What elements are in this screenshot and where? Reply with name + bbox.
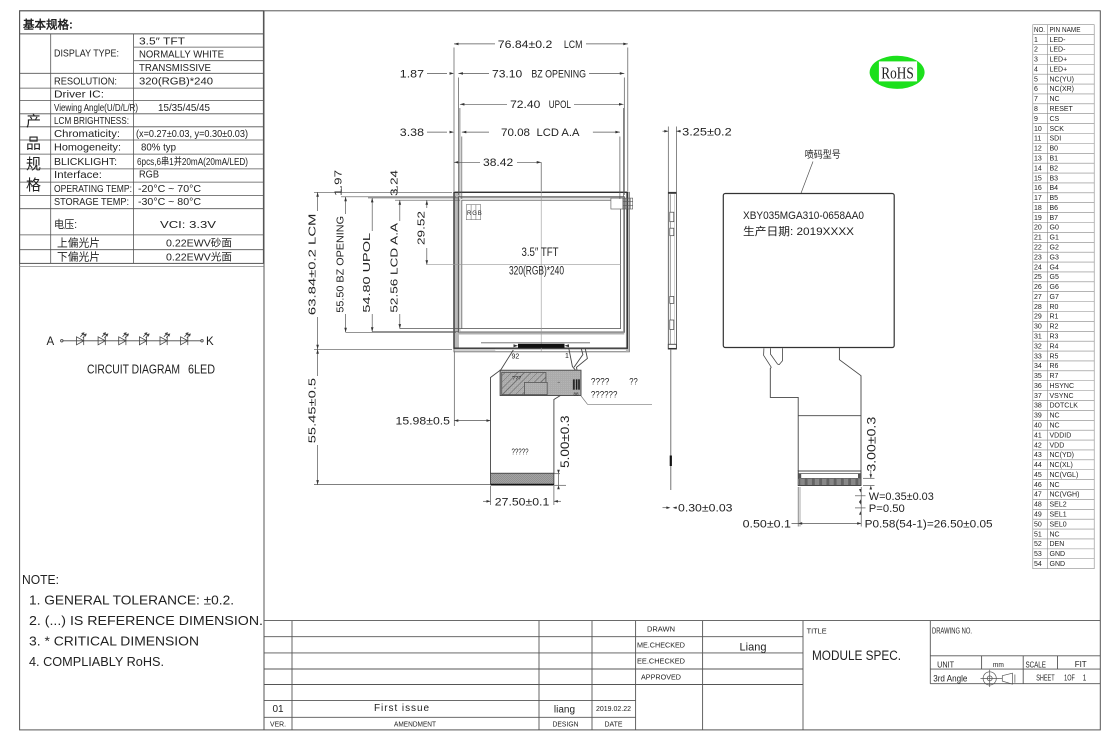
svg-text:BLICKLIGHT:: BLICKLIGHT: <box>54 157 117 168</box>
svg-text:喷码型号: 喷码型号 <box>805 148 841 161</box>
svg-text:???: ??? <box>512 376 521 382</box>
svg-text:RoHS: RoHS <box>881 64 914 83</box>
svg-text:G0: G0 <box>1050 225 1059 232</box>
svg-text:mm: mm <box>993 660 1004 669</box>
svg-text:30: 30 <box>1034 324 1042 331</box>
svg-text:29.52: 29.52 <box>416 211 428 245</box>
svg-text:AMENDMENT: AMENDMENT <box>394 720 436 729</box>
svg-text:RGB: RGB <box>467 211 483 217</box>
svg-text:55.45±0.5: 55.45±0.5 <box>306 378 318 444</box>
svg-text:电压:: 电压: <box>54 218 77 231</box>
svg-text:(x=0.27±0.03, y=0.30±0.03): (x=0.27±0.03, y=0.30±0.03) <box>136 129 248 140</box>
svg-text:NC: NC <box>1050 531 1060 538</box>
svg-text:35: 35 <box>1034 373 1042 380</box>
svg-text:73.10: 73.10 <box>492 68 522 80</box>
svg-text:G4: G4 <box>1050 264 1059 271</box>
svg-text:?????: ????? <box>512 448 529 457</box>
svg-text:FIT: FIT <box>1075 659 1087 669</box>
svg-text:DOTCLK: DOTCLK <box>1050 403 1079 410</box>
svg-text:1OF: 1OF <box>1064 673 1075 683</box>
svg-text:3: 3 <box>1034 57 1038 64</box>
svg-text:54.80 UPOL: 54.80 UPOL <box>361 233 373 313</box>
svg-text:SDI: SDI <box>1050 136 1062 143</box>
svg-text:2. (...) IS REFERENCE DIMENSIO: 2. (...) IS REFERENCE DIMENSION. <box>29 613 263 628</box>
svg-text:TRANSMISSIVE: TRANSMISSIVE <box>139 63 211 74</box>
svg-text:NC(YD): NC(YD) <box>1050 452 1075 459</box>
svg-text:ME.CHECKED: ME.CHECKED <box>637 641 686 650</box>
svg-text:8: 8 <box>1034 106 1038 113</box>
svg-text:NC: NC <box>1050 413 1060 420</box>
svg-text:G7: G7 <box>1050 294 1059 301</box>
svg-text:70.08: 70.08 <box>501 127 530 139</box>
svg-text:17: 17 <box>1034 195 1042 202</box>
svg-text:5.00±0.3: 5.00±0.3 <box>560 415 572 467</box>
svg-text:12: 12 <box>1034 146 1042 153</box>
svg-text:4: 4 <box>1034 66 1038 73</box>
svg-text:NC: NC <box>1050 423 1060 430</box>
svg-text:上偏光片: 上偏光片 <box>57 236 100 250</box>
svg-text:P0.58(54-1)=26.50±0.05: P0.58(54-1)=26.50±0.05 <box>865 518 993 530</box>
svg-text:GND: GND <box>1050 561 1066 568</box>
svg-text:42: 42 <box>1034 442 1042 449</box>
svg-text:MODULE SPEC.: MODULE SPEC. <box>812 648 901 663</box>
svg-text:33: 33 <box>1034 353 1042 360</box>
svg-text:54: 54 <box>1034 561 1042 568</box>
svg-text:52.56 LCD A.A: 52.56 LCD A.A <box>389 223 401 313</box>
svg-text:NC(XR): NC(XR) <box>1050 86 1075 93</box>
svg-text:49: 49 <box>1034 512 1042 519</box>
svg-text:LED-: LED- <box>1050 47 1067 54</box>
svg-text:G5: G5 <box>1050 274 1059 281</box>
svg-text:47: 47 <box>1034 492 1042 499</box>
svg-text:SEL0: SEL0 <box>1050 521 1067 528</box>
svg-text:3.38: 3.38 <box>400 127 424 139</box>
svg-text:CS: CS <box>1050 116 1060 123</box>
svg-text:NC(YU): NC(YU) <box>1050 76 1075 83</box>
svg-text:Interface:: Interface: <box>54 170 102 181</box>
svg-text:B3: B3 <box>1050 175 1059 182</box>
svg-text:27.50±0.1: 27.50±0.1 <box>495 496 550 508</box>
svg-text:1: 1 <box>565 353 569 360</box>
svg-text:XBY035MGA310-0658AA0: XBY035MGA310-0658AA0 <box>743 210 864 222</box>
svg-text:4. COMPLIABLY RoHS.: 4. COMPLIABLY RoHS. <box>29 654 164 669</box>
svg-text:SCALE: SCALE <box>1025 660 1046 670</box>
svg-text:-20°C ~ 70°C: -20°C ~ 70°C <box>138 184 202 195</box>
svg-text:2019.02.22: 2019.02.22 <box>596 704 631 713</box>
svg-text:DISPLAY TYPE:: DISPLAY TYPE: <box>54 49 119 60</box>
svg-text:生产日期: 2019XXXX: 生产日期: 2019XXXX <box>743 224 855 238</box>
svg-text:????: ???? <box>591 377 610 388</box>
svg-text:R4: R4 <box>1050 343 1059 350</box>
svg-text:NC: NC <box>1050 482 1060 489</box>
svg-text:VCI: 3.3V: VCI: 3.3V <box>160 220 216 231</box>
svg-text:NO.: NO. <box>1034 27 1045 34</box>
svg-text:B6: B6 <box>1050 205 1059 212</box>
svg-text:34: 34 <box>1034 363 1042 370</box>
svg-text:LCD A.A: LCD A.A <box>537 127 581 139</box>
svg-text:48: 48 <box>1034 502 1042 509</box>
svg-text:16: 16 <box>1034 185 1042 192</box>
svg-text:CIRCUIT DIAGRAM: CIRCUIT DIAGRAM <box>87 363 180 377</box>
svg-text:15/35/45/45: 15/35/45/45 <box>158 103 210 114</box>
svg-text:NORMALLY WHITE: NORMALLY WHITE <box>139 50 224 61</box>
svg-text:EE.CHECKED: EE.CHECKED <box>637 657 686 666</box>
svg-text:RESET: RESET <box>1050 106 1074 113</box>
svg-text:31: 31 <box>1034 333 1042 340</box>
svg-text:liang: liang <box>554 705 575 716</box>
svg-text:SEL2: SEL2 <box>1050 502 1067 509</box>
svg-text:品: 品 <box>26 136 41 153</box>
svg-text:76.84±0.2: 76.84±0.2 <box>498 39 553 51</box>
svg-text:DEN: DEN <box>1050 541 1065 548</box>
svg-text:51: 51 <box>1034 531 1042 538</box>
svg-text:0.50±0.1: 0.50±0.1 <box>743 518 791 530</box>
svg-text:??????: ?????? <box>591 390 618 401</box>
svg-text:39: 39 <box>1034 413 1042 420</box>
svg-text:B1: B1 <box>1050 155 1059 162</box>
svg-text:RESOLUTION:: RESOLUTION: <box>54 77 117 88</box>
svg-text:R6: R6 <box>1050 363 1059 370</box>
svg-text:G6: G6 <box>1050 284 1059 291</box>
svg-text:45: 45 <box>1034 472 1042 479</box>
svg-text:VDDID: VDDID <box>1050 432 1072 439</box>
svg-text:14: 14 <box>1034 165 1042 172</box>
svg-text:B5: B5 <box>1050 195 1059 202</box>
svg-text:GND: GND <box>1050 551 1066 558</box>
svg-text:52: 52 <box>1034 541 1042 548</box>
svg-text:Driver IC:: Driver IC: <box>54 90 104 101</box>
svg-text:01: 01 <box>272 704 284 715</box>
svg-text:38: 38 <box>1034 403 1042 410</box>
svg-text:3. * CRITICAL DIMENSION: 3. * CRITICAL DIMENSION <box>29 634 199 649</box>
svg-text:VER.: VER. <box>270 720 286 729</box>
svg-text:NC(VGH): NC(VGH) <box>1050 492 1080 499</box>
svg-text:LED+: LED+ <box>1050 66 1068 73</box>
svg-text:3.25±0.2: 3.25±0.2 <box>682 127 732 139</box>
svg-text:产: 产 <box>26 113 41 130</box>
svg-text:LCM BRIGHTNESS:: LCM BRIGHTNESS: <box>54 116 129 127</box>
svg-text:P=0.50: P=0.50 <box>869 503 905 515</box>
svg-text:1: 1 <box>1034 37 1038 44</box>
svg-text:NC: NC <box>1050 96 1060 103</box>
svg-text:80% typ: 80% typ <box>141 143 176 154</box>
svg-text:R0: R0 <box>1050 304 1059 311</box>
svg-text:BZ OPENING: BZ OPENING <box>531 68 586 80</box>
svg-text:下偏光片: 下偏光片 <box>57 250 100 264</box>
svg-text:STORAGE TEMP:: STORAGE TEMP: <box>54 197 129 208</box>
svg-text:10: 10 <box>1034 126 1042 133</box>
svg-text:PIN NAME: PIN NAME <box>1050 27 1081 34</box>
svg-text:0.22EWV光面: 0.22EWV光面 <box>166 251 232 264</box>
svg-text:40: 40 <box>1034 423 1042 430</box>
svg-text:1: 1 <box>1083 673 1087 683</box>
svg-text:27: 27 <box>1034 294 1042 301</box>
svg-text:88: 88 <box>574 392 580 397</box>
svg-text:25: 25 <box>1034 274 1042 281</box>
svg-text:7: 7 <box>1034 96 1038 103</box>
svg-text:Liang: Liang <box>740 642 767 654</box>
svg-text:2: 2 <box>1034 47 1038 54</box>
svg-text:43: 43 <box>1034 452 1042 459</box>
svg-text:R3: R3 <box>1050 333 1059 340</box>
svg-text:DATE: DATE <box>605 720 623 729</box>
svg-text:SEL1: SEL1 <box>1050 512 1067 519</box>
svg-text:OPERATING TEMP:: OPERATING TEMP: <box>54 184 132 195</box>
svg-text:G1: G1 <box>1050 235 1059 242</box>
svg-text:G2: G2 <box>1050 244 1059 251</box>
svg-text:1. GENERAL TOLERANCE: ±0.2.: 1. GENERAL TOLERANCE: ±0.2. <box>29 593 234 608</box>
svg-text:UPOL: UPOL <box>549 99 571 111</box>
svg-text:APPROVED: APPROVED <box>641 673 682 682</box>
svg-text:NOTE:: NOTE: <box>22 572 59 587</box>
svg-text:-30°C ~ 80°C: -30°C ~ 80°C <box>138 197 202 208</box>
svg-text:37: 37 <box>1034 393 1042 400</box>
svg-text:LED+: LED+ <box>1050 57 1068 64</box>
svg-text:Viewing Angle(U/D/L/R): Viewing Angle(U/D/L/R) <box>54 103 138 114</box>
svg-text:92: 92 <box>512 354 520 361</box>
svg-text:NC(XL): NC(XL) <box>1050 462 1073 469</box>
svg-text:UNIT: UNIT <box>937 660 954 670</box>
svg-text:13: 13 <box>1034 155 1042 162</box>
svg-text:320(RGB)*240: 320(RGB)*240 <box>509 266 564 278</box>
svg-text:6LED: 6LED <box>188 363 215 377</box>
svg-text:NC(VGL): NC(VGL) <box>1050 472 1079 479</box>
svg-text:44: 44 <box>1034 462 1042 469</box>
svg-text:41: 41 <box>1034 432 1042 439</box>
svg-text:TITLE: TITLE <box>807 627 827 636</box>
svg-text:K: K <box>206 336 214 348</box>
svg-text:G3: G3 <box>1050 254 1059 261</box>
svg-text:DRAWN: DRAWN <box>647 625 675 634</box>
svg-text:38.42: 38.42 <box>483 157 513 169</box>
svg-text:18: 18 <box>1034 205 1042 212</box>
svg-text:26: 26 <box>1034 284 1042 291</box>
svg-text:29: 29 <box>1034 314 1042 321</box>
svg-text:6: 6 <box>1034 86 1038 93</box>
svg-text:基本规格:: 基本规格: <box>22 18 73 32</box>
svg-text:15: 15 <box>1034 175 1042 182</box>
svg-text:36: 36 <box>1034 383 1042 390</box>
svg-text:R2: R2 <box>1050 324 1059 331</box>
svg-text:3rd Angle: 3rd Angle <box>933 673 967 683</box>
svg-text:B0: B0 <box>1050 146 1059 153</box>
svg-text:23: 23 <box>1034 254 1042 261</box>
svg-text:53: 53 <box>1034 551 1042 558</box>
svg-text:W=0.35±0.03: W=0.35±0.03 <box>869 491 934 503</box>
svg-text:??: ?? <box>629 377 638 388</box>
svg-text:11: 11 <box>1034 136 1041 143</box>
svg-text:1.87: 1.87 <box>400 68 424 80</box>
svg-text:HSYNC: HSYNC <box>1050 383 1075 390</box>
svg-text:LCM: LCM <box>564 39 583 51</box>
svg-text:DESIGN: DESIGN <box>553 720 579 729</box>
svg-text:LED-: LED- <box>1050 37 1067 44</box>
svg-text:9: 9 <box>1034 116 1038 123</box>
svg-text:Chromaticity:: Chromaticity: <box>54 129 120 140</box>
svg-text:320(RGB)*240: 320(RGB)*240 <box>139 77 213 88</box>
svg-text:0.30±0.03: 0.30±0.03 <box>678 503 733 515</box>
svg-text:B7: B7 <box>1050 215 1059 222</box>
svg-text:1.97: 1.97 <box>333 170 345 196</box>
svg-text:46: 46 <box>1034 482 1042 489</box>
svg-text:R7: R7 <box>1050 373 1059 380</box>
svg-text:28: 28 <box>1034 304 1042 311</box>
svg-text:19: 19 <box>1034 215 1042 222</box>
svg-text:20: 20 <box>1034 225 1042 232</box>
svg-text:3.5″ TFT: 3.5″ TFT <box>139 36 186 47</box>
svg-text:3.00±0.3: 3.00±0.3 <box>866 417 878 472</box>
svg-text:15.98±0.5: 15.98±0.5 <box>396 416 451 428</box>
svg-text:24: 24 <box>1034 264 1042 271</box>
svg-text:VDD: VDD <box>1050 442 1065 449</box>
svg-text:3.24: 3.24 <box>388 170 400 196</box>
svg-text:R5: R5 <box>1050 353 1059 360</box>
svg-text:A: A <box>47 336 55 348</box>
svg-text:32: 32 <box>1034 343 1042 350</box>
svg-text:22: 22 <box>1034 244 1042 251</box>
svg-text:规: 规 <box>26 156 41 173</box>
svg-text:50: 50 <box>1034 521 1042 528</box>
svg-text:DRAWING NO.: DRAWING NO. <box>932 626 972 636</box>
svg-text:72.40: 72.40 <box>510 99 540 111</box>
svg-text:B4: B4 <box>1050 185 1059 192</box>
svg-text:VSYNC: VSYNC <box>1050 393 1074 400</box>
svg-text:0.22EWV砂面: 0.22EWV砂面 <box>166 237 232 250</box>
svg-text:First issue: First issue <box>374 702 430 714</box>
svg-text:55.50 BZ OPENING: 55.50 BZ OPENING <box>334 216 346 313</box>
svg-text:5: 5 <box>1034 76 1038 83</box>
svg-text:SHEET: SHEET <box>1036 673 1054 683</box>
svg-text:3.5″ TFT: 3.5″ TFT <box>522 247 559 259</box>
svg-text:Homogeneity:: Homogeneity: <box>54 143 121 154</box>
svg-text:SCK: SCK <box>1050 126 1065 133</box>
svg-text:R1: R1 <box>1050 314 1059 321</box>
svg-text:6pcs,6串1并20mA(20mA/LED): 6pcs,6串1并20mA(20mA/LED) <box>137 155 248 168</box>
svg-text:63.84±0.2 LCM: 63.84±0.2 LCM <box>306 214 318 316</box>
svg-text:B2: B2 <box>1050 165 1059 172</box>
svg-text:21: 21 <box>1034 235 1042 242</box>
svg-text:RGB: RGB <box>139 170 159 181</box>
svg-text:格: 格 <box>26 177 41 194</box>
